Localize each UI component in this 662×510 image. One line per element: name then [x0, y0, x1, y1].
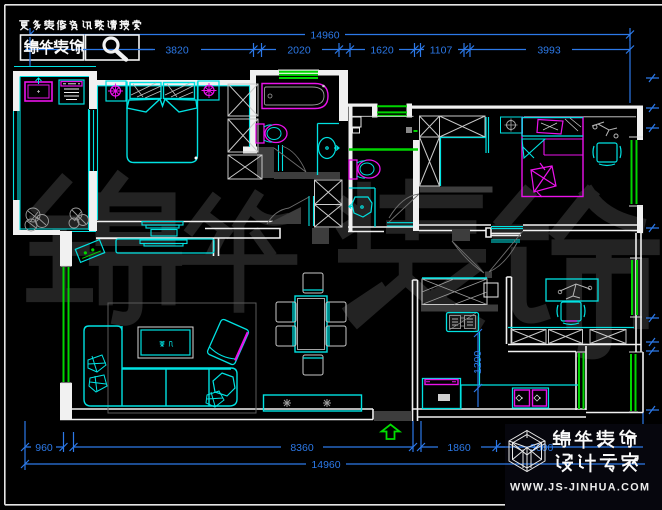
svg-text:1620: 1620	[370, 45, 394, 57]
svg-text:1860: 1860	[447, 442, 471, 454]
svg-text:14960: 14960	[311, 459, 340, 471]
svg-text:WWW.JS-JINHUA.COM: WWW.JS-JINHUA.COM	[510, 482, 650, 494]
svg-text:1107: 1107	[430, 45, 453, 57]
svg-text:14960: 14960	[310, 30, 339, 42]
svg-text:1290: 1290	[472, 350, 484, 374]
svg-text:2020: 2020	[287, 45, 311, 57]
svg-text:3993: 3993	[537, 45, 561, 57]
svg-text:8360: 8360	[290, 442, 314, 454]
svg-text:3820: 3820	[165, 45, 189, 57]
svg-text:960: 960	[35, 442, 53, 454]
